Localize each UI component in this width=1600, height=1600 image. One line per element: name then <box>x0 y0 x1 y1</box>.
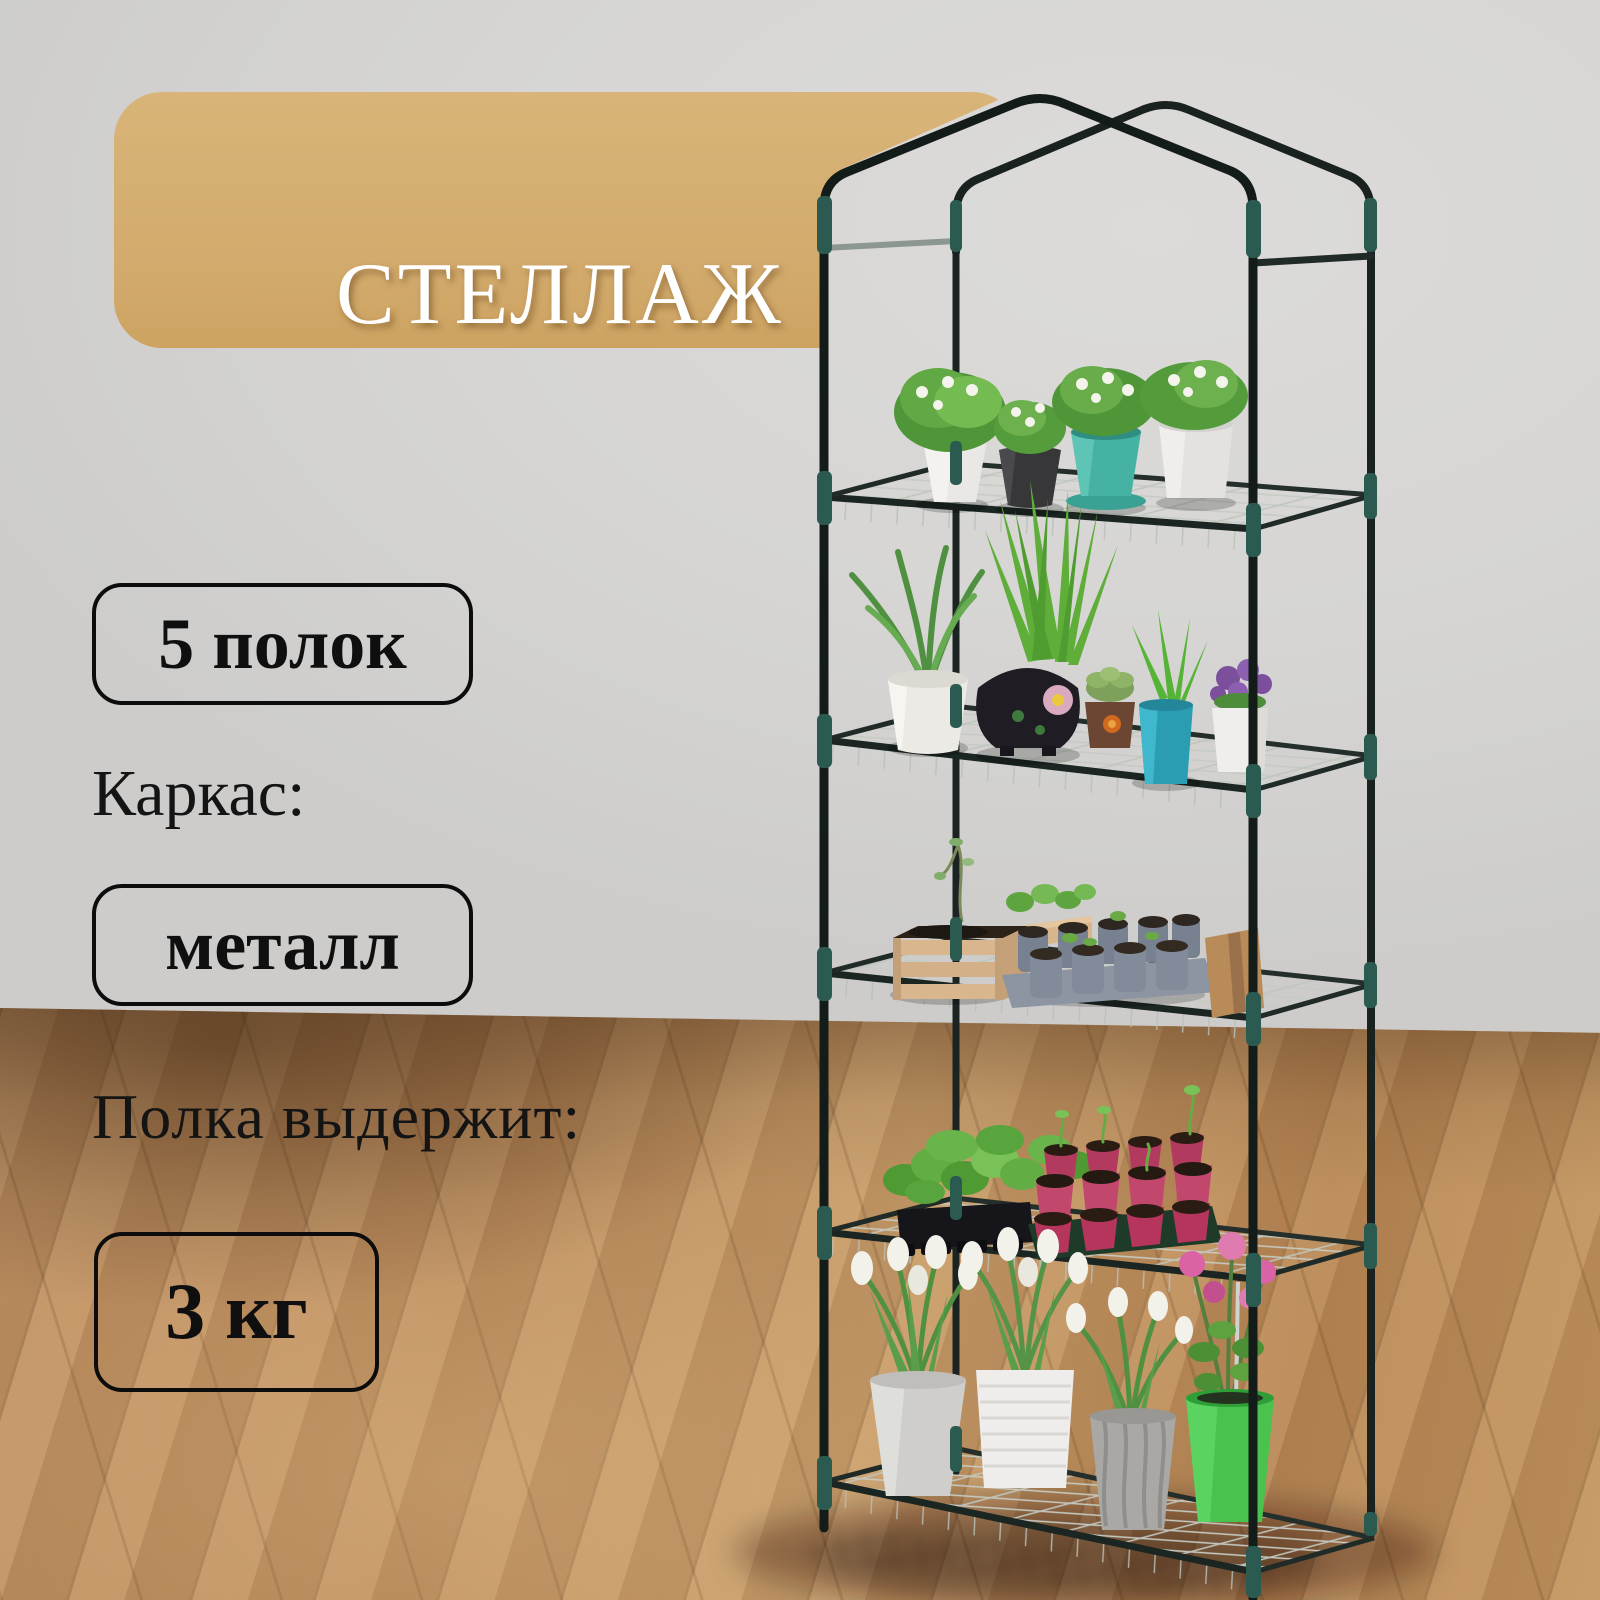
load-capacity-box: 3 кг <box>94 1232 379 1392</box>
frame-label: Каркас: <box>92 756 305 832</box>
load-label: Полка выдержит: <box>92 1080 581 1154</box>
badge-title: СТЕЛЛАЖ <box>336 244 784 345</box>
frame-material-value: металл <box>165 904 400 987</box>
load-capacity-value: 3 кг <box>165 1267 307 1358</box>
shelves-count-box: 5 полок <box>92 583 473 705</box>
frame-material-box: металл <box>92 884 473 1006</box>
shelves-count-value: 5 полок <box>158 603 406 686</box>
product-card: СТЕЛЛАЖ для рассады <box>0 0 1600 1600</box>
